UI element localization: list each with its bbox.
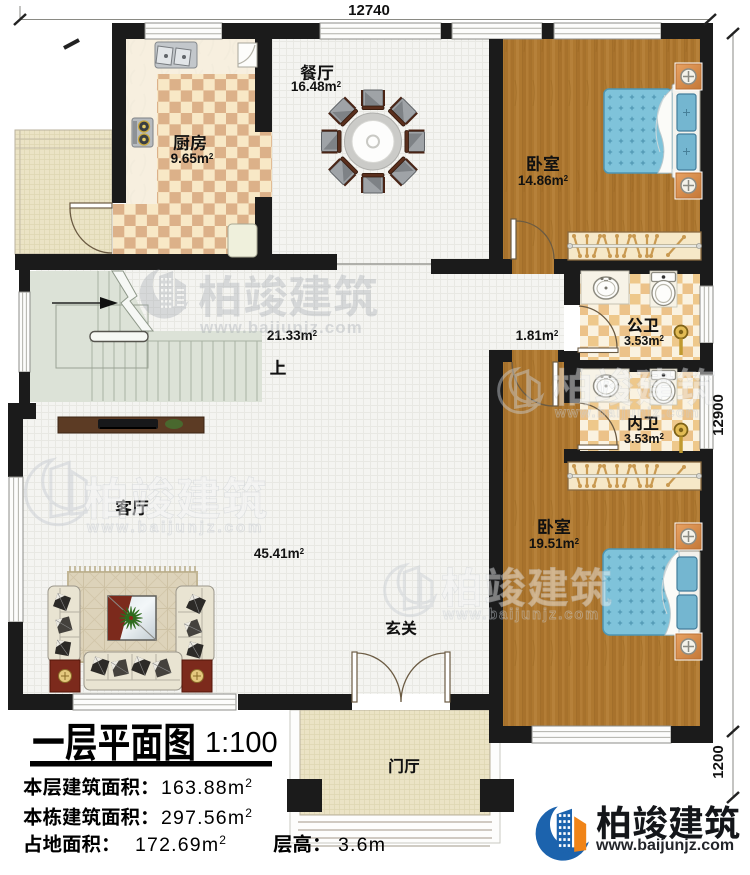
svg-text:www.baijunjz.com: www.baijunjz.com xyxy=(442,607,600,623)
svg-text:3.53m2: 3.53m2 xyxy=(624,334,664,348)
svg-text:14.86m2: 14.86m2 xyxy=(518,173,569,188)
svg-text:163.88m2: 163.88m2 xyxy=(161,776,253,799)
svg-text:16.48m2: 16.48m2 xyxy=(291,79,342,94)
svg-text:www.baijunjz.com: www.baijunjz.com xyxy=(199,318,363,337)
svg-text:172.69m2: 172.69m2 xyxy=(135,833,227,856)
svg-text:12900: 12900 xyxy=(710,394,727,436)
svg-text:3.6m: 3.6m xyxy=(338,834,386,856)
svg-text:www.baijunjz.com: www.baijunjz.com xyxy=(86,519,264,536)
svg-text:www.baijunjz.com: www.baijunjz.com xyxy=(595,837,734,854)
svg-text:1.81m2: 1.81m2 xyxy=(516,328,559,343)
svg-text:9.65m2: 9.65m2 xyxy=(171,151,214,166)
svg-text:1200: 1200 xyxy=(710,745,727,778)
svg-text:45.41m2: 45.41m2 xyxy=(254,546,305,561)
svg-text:www.baijunjz.com: www.baijunjz.com xyxy=(554,404,700,420)
svg-text:19.51m2: 19.51m2 xyxy=(529,536,580,551)
svg-text:297.56m2: 297.56m2 xyxy=(161,806,253,829)
svg-text:1:100: 1:100 xyxy=(205,727,278,759)
svg-text:3.53m2: 3.53m2 xyxy=(624,432,664,446)
svg-text:12740: 12740 xyxy=(348,2,390,19)
